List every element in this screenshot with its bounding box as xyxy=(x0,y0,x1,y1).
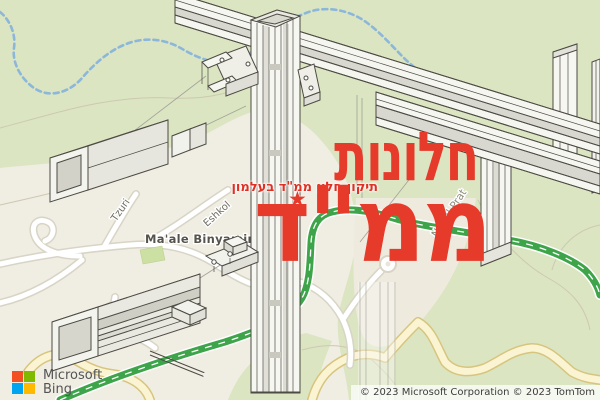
bing-map-canvas[interactable]: Ma'ale Binyamin Tzuri Eshkol Noit Nahal … xyxy=(0,0,600,400)
cad-lower-right-member xyxy=(358,282,396,400)
brand-line-1: Microsoft xyxy=(43,369,102,383)
copyright-notice: © 2023 Microsoft Corporation © 2023 TomT… xyxy=(351,385,600,400)
microsoft-logo-icon xyxy=(12,371,35,394)
bing-logo[interactable]: Microsoft Bing xyxy=(12,369,102,396)
bing-logo-text: Microsoft Bing xyxy=(43,369,102,396)
brand-line-2: Bing xyxy=(43,383,102,397)
overlay-title-line2: ממ"ד xyxy=(254,173,490,277)
